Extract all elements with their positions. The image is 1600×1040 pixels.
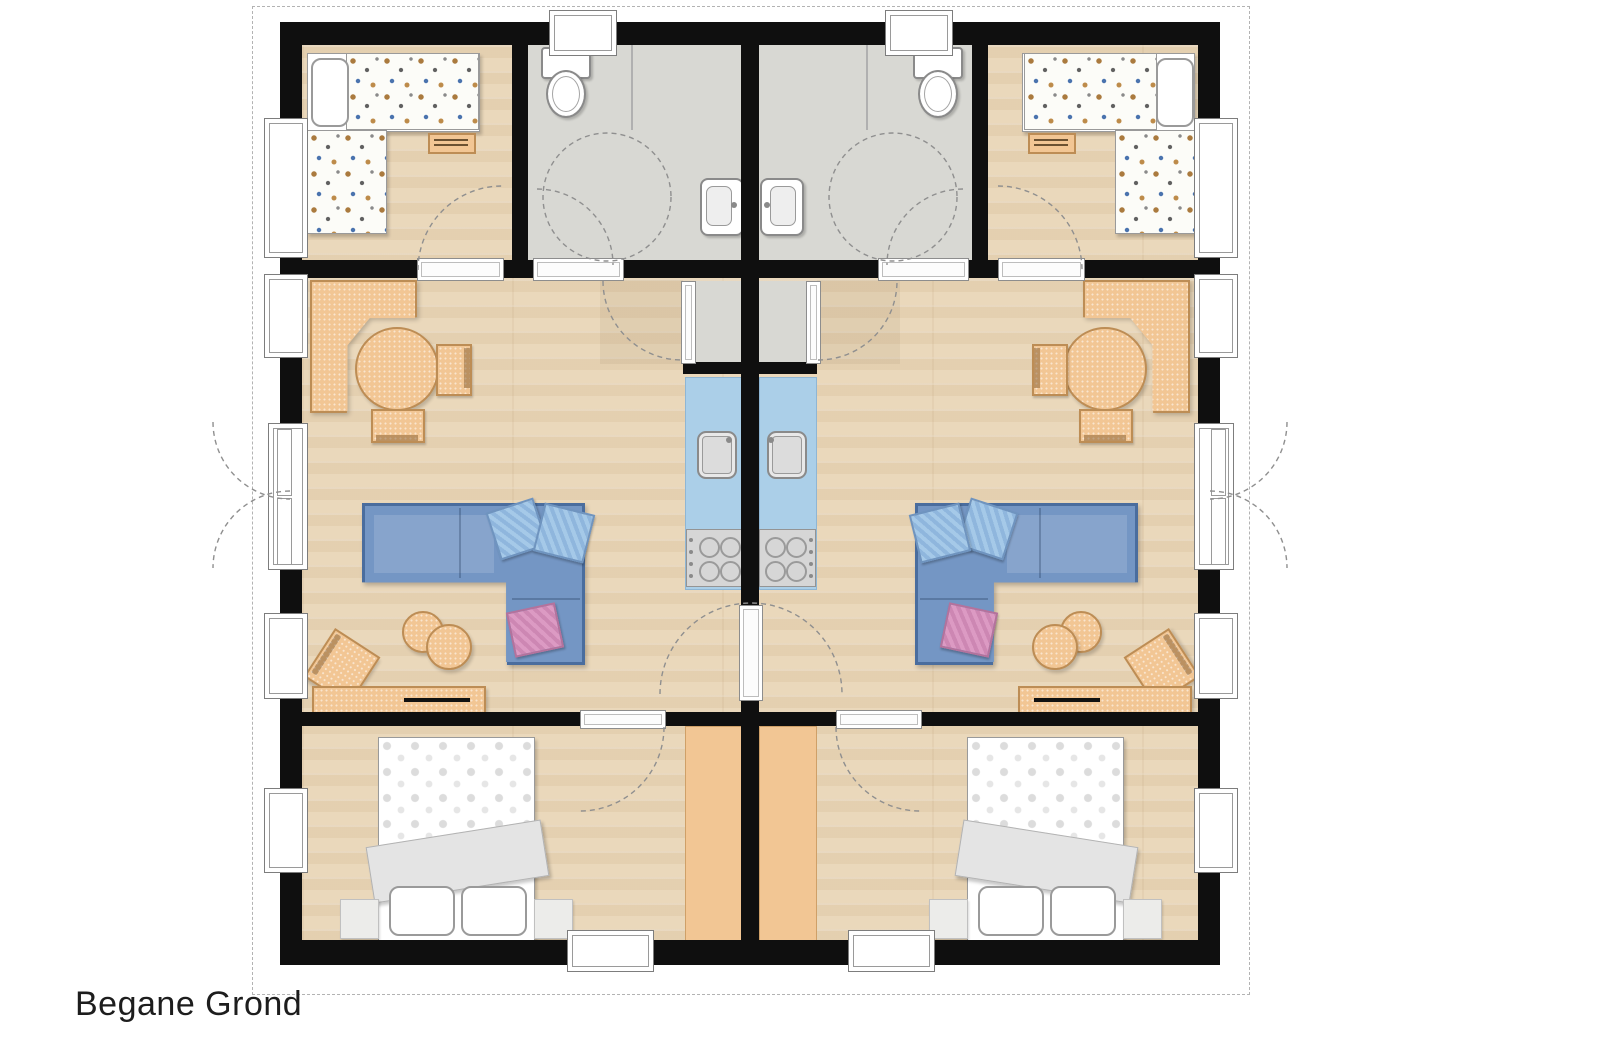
french-door-right [1194,423,1234,570]
floor-plan-canvas: Begane Grond [0,0,1600,1040]
sofa-seam [1039,508,1041,578]
window-right-bedroom-bottom [1194,788,1238,873]
burner [720,561,741,582]
window-bottom-bedroom-left [567,930,654,972]
stove-left [686,529,743,587]
floor-vestibule-left [693,281,741,362]
wall-central [741,45,759,940]
door-bathroom-left [533,258,624,281]
sofa-seam [512,598,580,600]
burner [786,537,807,558]
door-bathroom-right [878,258,969,281]
door-vestibule-right [806,281,821,364]
door-panel [277,498,292,565]
pillow [311,58,349,127]
bench-slat [434,139,468,141]
pillow [1050,886,1116,936]
sofa-seam [920,598,988,600]
window-top-bathroom-left [549,10,617,56]
bench-slat [434,144,468,146]
sideboard-handle [404,698,470,702]
sofa-cushion [374,515,494,573]
dining-chair [371,409,425,443]
stove-right [759,529,816,587]
door-bedroom-bottom-left [580,710,666,729]
sideboard-handle [1034,698,1100,702]
dining-table-right [1063,327,1147,411]
double-bed-left [378,737,535,941]
chair-backrest [464,348,470,388]
wall-divider-right [759,712,1198,726]
burner [786,561,807,582]
wall-bedroom-right [972,45,988,260]
door-vestibule-left [681,281,696,364]
faucet-icon [726,437,732,443]
stove-knob [689,574,693,578]
toilet-bowl-left [546,70,586,118]
door-bedroom-top-right [998,258,1085,281]
wall-vestibule-stub [683,362,817,374]
shower-screen-left [631,45,633,130]
dining-chair [436,344,472,396]
faucet-icon [768,437,774,443]
wall-band-right [759,260,1198,278]
door-panel [277,429,292,496]
chair-backrest [1034,348,1040,388]
kids-bed-top-right [1022,53,1195,132]
door-panel [1211,429,1226,496]
window-top-bathroom-right [885,10,953,56]
kids-bed-duvet [346,53,479,130]
sofa-seam [459,508,461,578]
sink-left [700,178,744,236]
door-swing-shade-left [600,280,683,364]
faucet-icon [764,202,770,208]
stove-knob [809,550,813,554]
pouf-large [1032,624,1078,670]
bed-bench-right [1028,133,1076,154]
pillow [978,886,1044,936]
wardrobe-left [685,726,743,942]
window-right-living-upper [1194,274,1238,358]
stove-knob [809,562,813,566]
dining-table-left [355,327,439,411]
burner [720,537,741,558]
wall-exterior-bottom [280,940,1220,965]
chair-backrest [376,435,418,441]
door-connecting-units [739,605,763,701]
window-right-bedroom-top [1194,118,1238,258]
dining-chair [1079,409,1133,443]
shower-screen-right [866,45,868,130]
window-left-living-upper [264,274,308,358]
floor-label: Begane Grond [75,985,302,1024]
pouf-large [426,624,472,670]
sink-right [760,178,804,236]
kids-bed-side-right [1115,130,1195,234]
sink-basin [770,186,796,226]
sink-basin [706,186,732,226]
pillow [461,886,527,936]
kids-bed-top-left [307,53,480,132]
toilet-bowl-right [918,70,958,118]
burner [765,561,786,582]
wall-bedroom-left [512,45,528,260]
window-left-living-lower [264,613,308,699]
wall-divider-left [302,712,741,726]
burner [699,561,720,582]
burner [699,537,720,558]
stove-knob [689,562,693,566]
stove-knob [809,538,813,542]
bed-bench-left [428,133,476,154]
double-bed-right [967,737,1124,941]
door-bedroom-bottom-right [836,710,922,729]
window-right-living-lower [1194,613,1238,699]
french-door-left [268,423,308,570]
stove-knob [809,574,813,578]
pillow [389,886,455,936]
bench-slat [1034,139,1068,141]
bench-slat [1034,144,1068,146]
sofa-pillow-pink [940,602,998,657]
stove-knob [689,550,693,554]
nightstand [1123,899,1162,939]
wardrobe-right [759,726,817,942]
window-left-bedroom-bottom [264,788,308,873]
kids-bed-side-left [307,130,387,234]
pillow [1156,58,1194,127]
door-panel [1211,498,1226,565]
chair-backrest [1084,435,1126,441]
window-bottom-bedroom-right [848,930,935,972]
kids-bed-duvet [1024,53,1157,130]
wall-band-left [302,260,741,278]
dining-chair [1032,344,1068,396]
sofa-cushion [1007,515,1127,573]
door-bedroom-top-left [417,258,504,281]
wall-exterior-top [280,22,1220,45]
stove-knob [689,538,693,542]
floor-vestibule-right [759,281,807,362]
nightstand [340,899,379,939]
door-swing-shade-right [817,280,900,364]
window-left-bedroom-top [264,118,308,258]
burner [765,537,786,558]
faucet-icon [731,202,737,208]
